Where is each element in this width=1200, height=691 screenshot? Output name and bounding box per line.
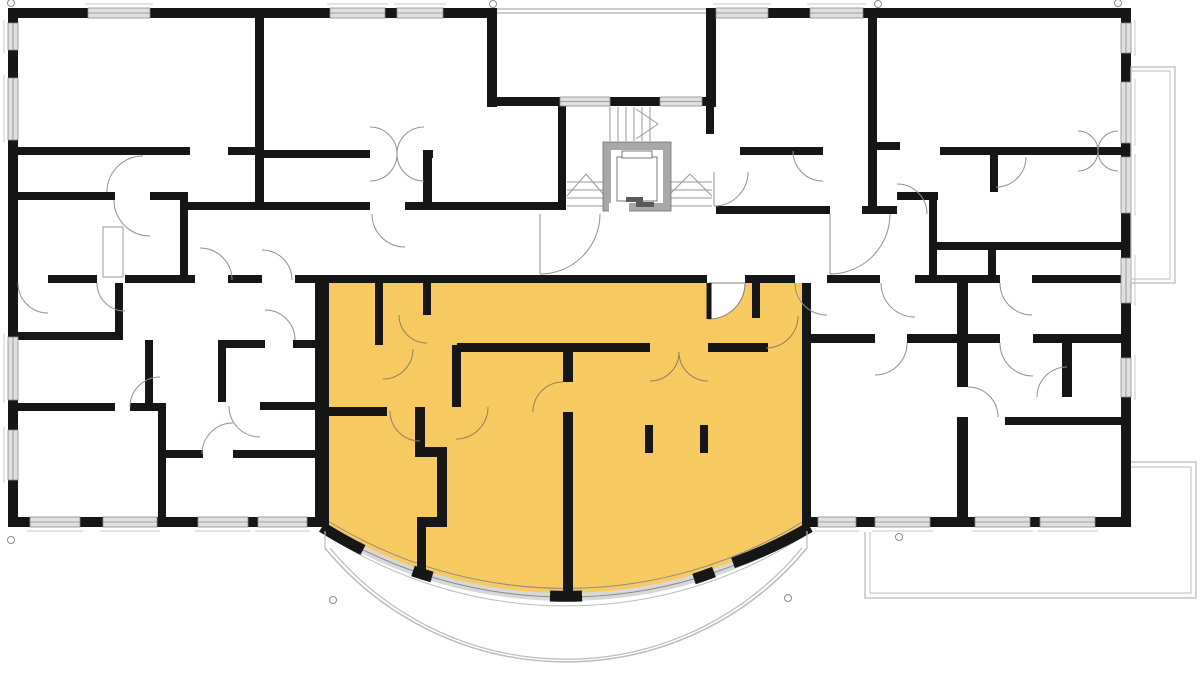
balconies [865,462,1196,598]
floor-plan [0,0,1200,691]
floor-plan-canvas [0,0,1200,691]
